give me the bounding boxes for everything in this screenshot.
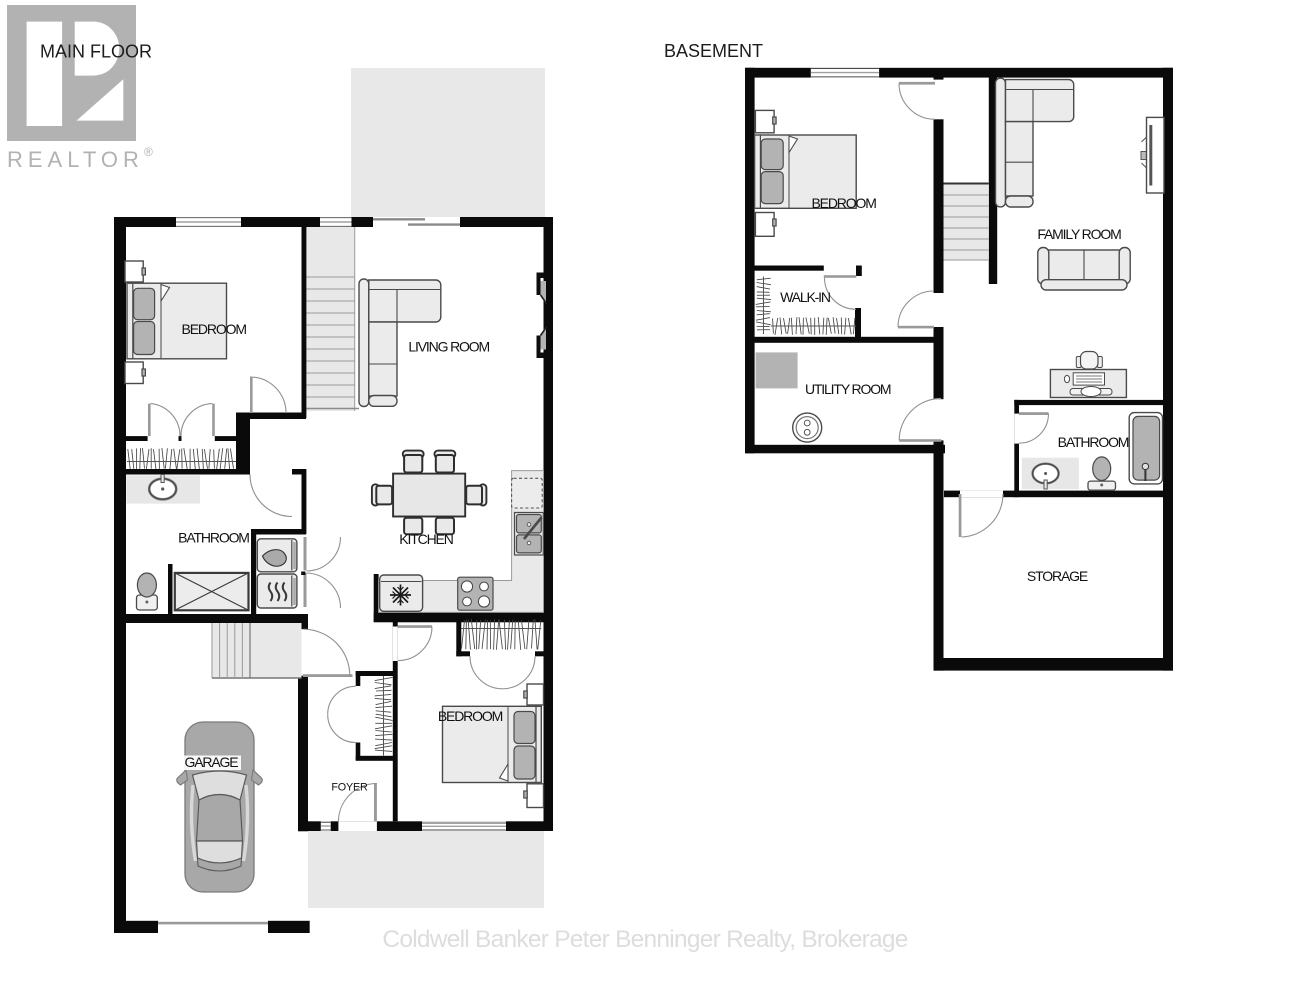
svg-text:WALK-IN: WALK-IN xyxy=(780,289,830,305)
svg-text:BATHROOM: BATHROOM xyxy=(1058,434,1129,450)
svg-text:LIVING ROOM: LIVING ROOM xyxy=(408,339,489,355)
svg-text:REALTOR: REALTOR xyxy=(7,147,144,172)
svg-text:BEDROOM: BEDROOM xyxy=(811,195,876,211)
svg-text:Coldwell Banker Peter Benninge: Coldwell Banker Peter Benninger Realty, … xyxy=(382,926,907,953)
svg-text:GARAGE: GARAGE xyxy=(184,754,238,770)
svg-text:BEDROOM: BEDROOM xyxy=(438,708,503,724)
svg-text:BEDROOM: BEDROOM xyxy=(182,321,247,337)
svg-text:UTILITY ROOM: UTILITY ROOM xyxy=(805,381,891,397)
svg-text:STORAGE: STORAGE xyxy=(1027,568,1088,584)
svg-text:FOYER: FOYER xyxy=(331,782,368,794)
svg-text:®: ® xyxy=(144,145,153,159)
svg-text:BATHROOM: BATHROOM xyxy=(178,530,249,546)
svg-text:MAIN FLOOR: MAIN FLOOR xyxy=(40,42,152,62)
svg-text:BASEMENT: BASEMENT xyxy=(664,41,763,61)
svg-text:FAMILY ROOM: FAMILY ROOM xyxy=(1037,226,1121,242)
svg-text:KITCHEN: KITCHEN xyxy=(399,531,452,547)
